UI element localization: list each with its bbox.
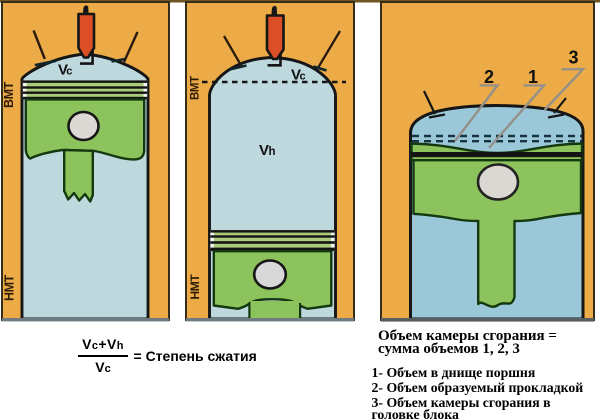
- svg-text:ВМТ: ВМТ: [2, 81, 16, 108]
- svg-text:2: 2: [484, 67, 494, 87]
- svg-text:ВМТ: ВМТ: [190, 76, 202, 100]
- svg-text:НМТ: НМТ: [188, 274, 202, 300]
- svg-text:V: V: [259, 142, 269, 159]
- svg-text:3: 3: [569, 48, 579, 68]
- svg-text:c: c: [66, 66, 72, 78]
- svg-text:1: 1: [528, 67, 538, 87]
- svg-text:c: c: [300, 71, 306, 83]
- svg-text:НМТ: НМТ: [3, 274, 17, 301]
- svg-text:h: h: [269, 146, 276, 158]
